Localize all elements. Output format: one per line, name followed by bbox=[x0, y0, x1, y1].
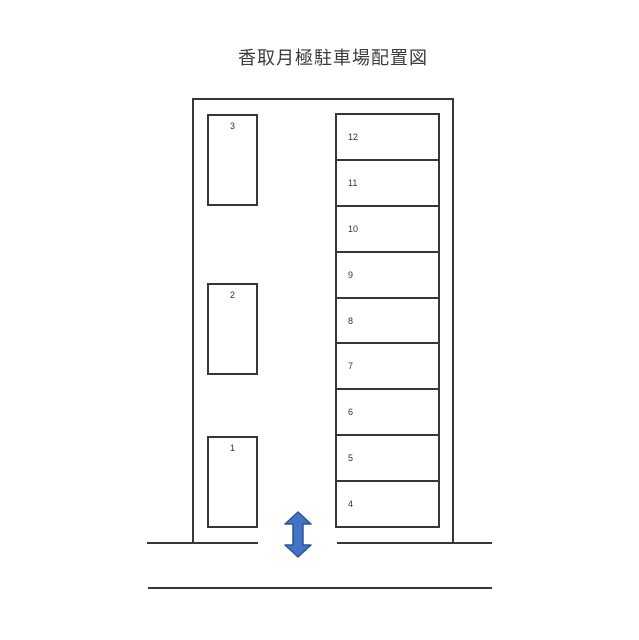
parking-space-label: 1 bbox=[230, 443, 235, 453]
parking-space-6: 6 bbox=[337, 390, 438, 436]
parking-space-column: 12 11 10 9 8 7 6 5 4 bbox=[335, 113, 440, 528]
road-line bbox=[148, 587, 492, 589]
parking-space-4: 4 bbox=[337, 482, 438, 526]
parking-space-2: 2 bbox=[207, 283, 258, 375]
parking-layout-diagram: 香取月極駐車場配置図 3 2 1 12 11 10 9 8 7 6 5 4 bbox=[0, 0, 639, 640]
parking-space-label: 3 bbox=[230, 121, 235, 131]
double-vertical-arrow-icon bbox=[284, 511, 312, 558]
parking-space-label: 2 bbox=[230, 290, 235, 300]
parking-space-9: 9 bbox=[337, 253, 438, 299]
page-title: 香取月極駐車場配置図 bbox=[27, 44, 639, 70]
parking-space-10: 10 bbox=[337, 207, 438, 253]
frontage-line-left bbox=[147, 542, 258, 544]
parking-space-1: 1 bbox=[207, 436, 258, 528]
parking-space-12: 12 bbox=[337, 115, 438, 161]
parking-space-7: 7 bbox=[337, 344, 438, 390]
parking-space-5: 5 bbox=[337, 436, 438, 482]
parking-space-3: 3 bbox=[207, 114, 258, 206]
frontage-line-right bbox=[337, 542, 492, 544]
parking-space-8: 8 bbox=[337, 299, 438, 345]
parking-space-11: 11 bbox=[337, 161, 438, 207]
entrance-arrow-shape bbox=[285, 512, 311, 557]
